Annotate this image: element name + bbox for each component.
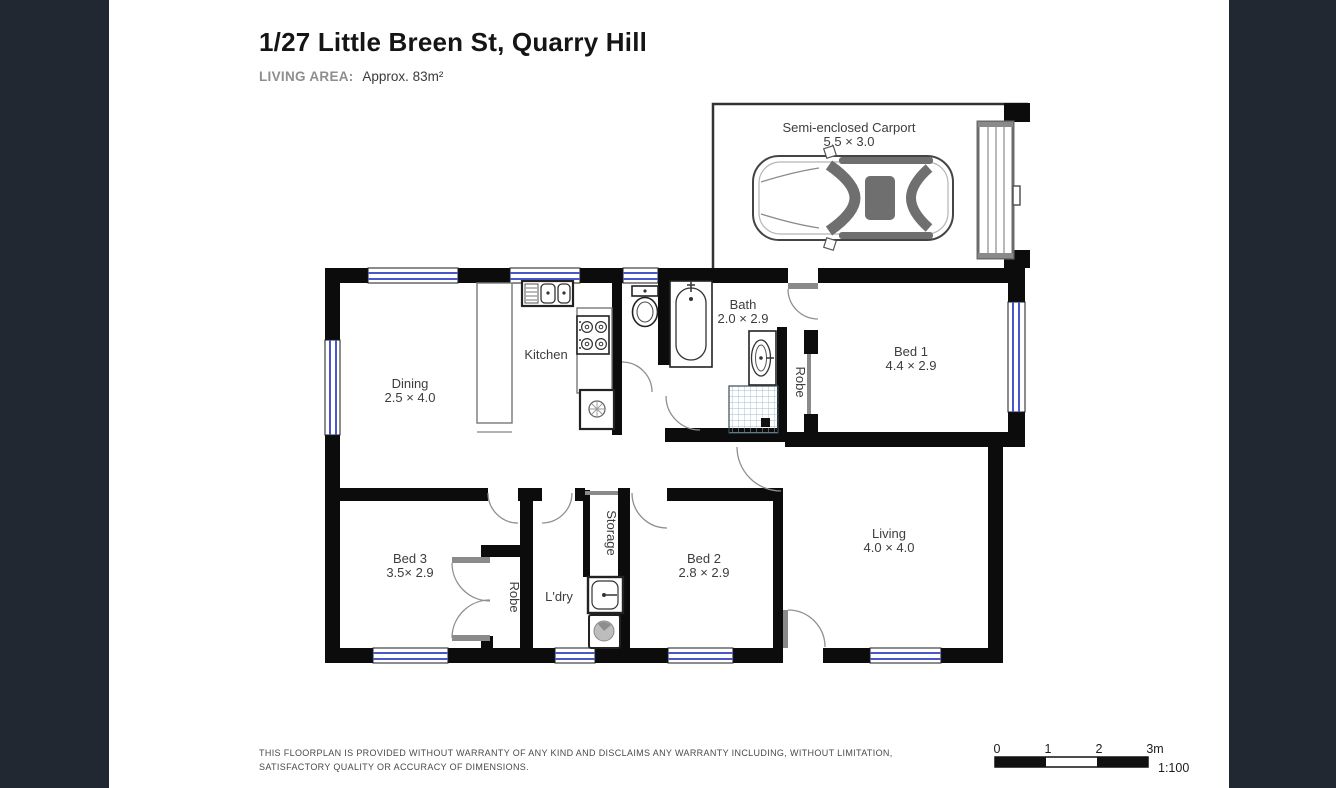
door-leaf bbox=[783, 610, 788, 648]
kitchen-sink-icon bbox=[522, 281, 573, 306]
door-leaf bbox=[788, 283, 818, 289]
door-arc bbox=[452, 600, 490, 638]
window bbox=[373, 648, 448, 663]
kitchen-bench bbox=[477, 283, 512, 423]
screenshot-root: { "header": { "title": "1/27 Little Bree… bbox=[0, 0, 1336, 788]
room-label-bed2: Bed 2 bbox=[687, 551, 721, 566]
door-arc bbox=[488, 493, 518, 523]
window bbox=[325, 340, 340, 435]
window bbox=[555, 648, 595, 663]
door-arc bbox=[622, 362, 652, 392]
window bbox=[1008, 302, 1025, 412]
room-label-carport: Semi-enclosed Carport bbox=[783, 120, 916, 135]
scale-ratio: 1:100 bbox=[1158, 761, 1189, 775]
window bbox=[368, 268, 458, 283]
room-label-bed3: Bed 3 bbox=[393, 551, 427, 566]
room-dims-bed2: 2.8 × 2.9 bbox=[679, 565, 730, 580]
room-label-bath: Bath bbox=[730, 297, 757, 312]
door-arc bbox=[788, 289, 818, 319]
room-label-robe-bed1: Robe bbox=[793, 366, 808, 397]
window bbox=[668, 648, 733, 663]
carport-wall-block bbox=[1004, 103, 1030, 122]
door-arc bbox=[542, 493, 572, 523]
room-dims-bath: 2.0 × 2.9 bbox=[718, 311, 769, 326]
room-label-storage: Storage bbox=[604, 510, 619, 556]
door-arc bbox=[452, 563, 490, 601]
laundry-tub-icon bbox=[588, 577, 623, 613]
scale-bar-segment bbox=[995, 757, 1046, 767]
shower-icon bbox=[729, 386, 778, 433]
door-leaf bbox=[452, 635, 490, 641]
window bbox=[870, 648, 941, 663]
scale-tick-3m: 3m bbox=[1146, 742, 1163, 756]
door-arc bbox=[632, 493, 667, 528]
scale-bar: 0 1 2 3m 1:100 bbox=[994, 742, 1190, 775]
room-label-robe-bed3: Robe bbox=[507, 581, 522, 612]
scale-bar-segment bbox=[1097, 757, 1148, 767]
room-label-laundry: L'dry bbox=[545, 589, 573, 604]
floorplan-drawing: Semi-enclosed Carport 5.5 × 3.0 bbox=[0, 0, 1336, 788]
stove-icon bbox=[577, 316, 609, 354]
room-label-kitchen: Kitchen bbox=[524, 347, 567, 362]
storage-slider bbox=[585, 491, 618, 495]
room-dims-bed1: 4.4 × 2.9 bbox=[886, 358, 937, 373]
carport: Semi-enclosed Carport 5.5 × 3.0 bbox=[713, 103, 1030, 268]
room-label-dining: Dining bbox=[392, 376, 429, 391]
scale-tick-1: 1 bbox=[1045, 742, 1052, 756]
window bbox=[623, 268, 658, 283]
bathtub-icon bbox=[670, 281, 712, 367]
washing-machine-icon bbox=[589, 615, 620, 648]
door-arc bbox=[788, 610, 825, 647]
oven-icon bbox=[580, 390, 614, 429]
door-arc bbox=[737, 447, 781, 491]
carport-roller-door bbox=[978, 122, 1020, 258]
door-arc bbox=[666, 396, 700, 430]
vanity-icon bbox=[749, 331, 776, 385]
scale-tick-2: 2 bbox=[1096, 742, 1103, 756]
room-dims-dining: 2.5 × 4.0 bbox=[385, 390, 436, 405]
scale-tick-0: 0 bbox=[994, 742, 1001, 756]
room-label-living: Living bbox=[872, 526, 906, 541]
room-label-bed1: Bed 1 bbox=[894, 344, 928, 359]
room-dims-living: 4.0 × 4.0 bbox=[864, 540, 915, 555]
door-leaf bbox=[452, 557, 490, 563]
toilet-icon bbox=[632, 286, 658, 327]
car-illustration bbox=[753, 146, 953, 251]
room-dims-bed3: 3.5× 2.9 bbox=[386, 565, 433, 580]
